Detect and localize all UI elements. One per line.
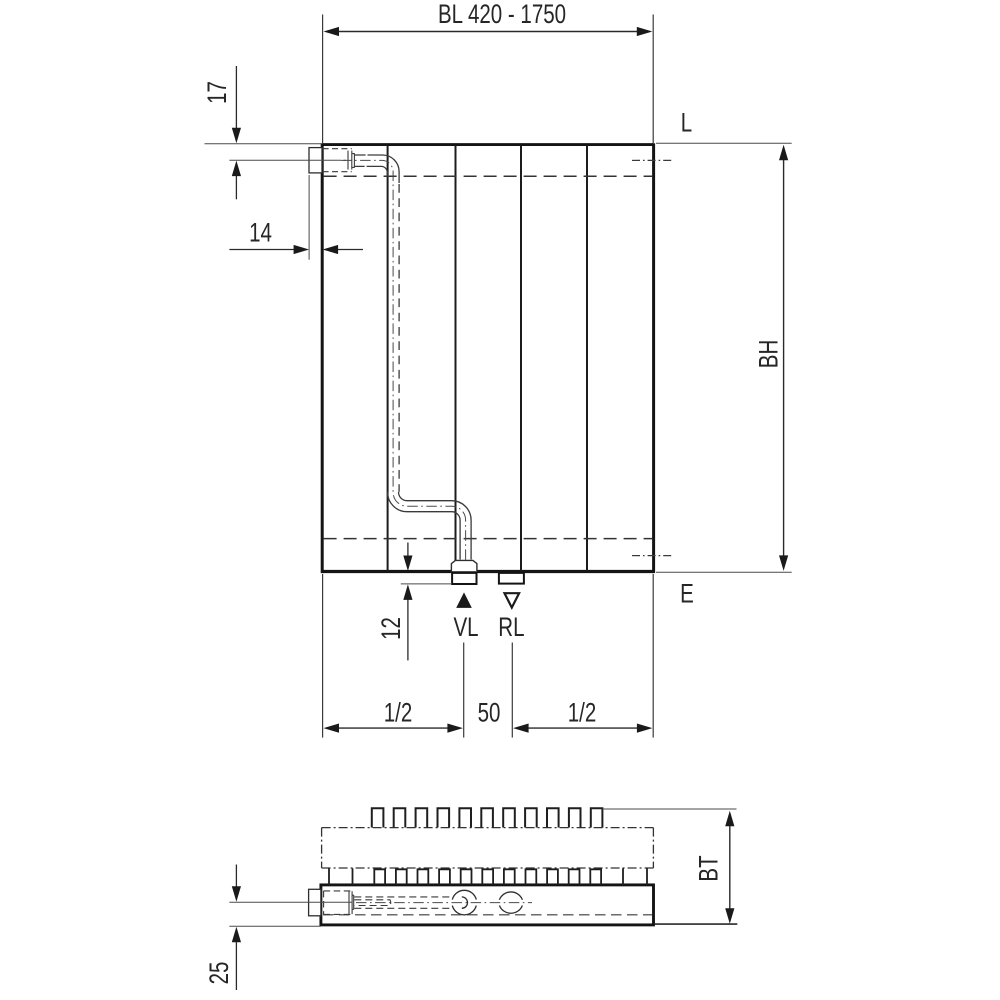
svg-text:L: L xyxy=(681,108,692,138)
svg-text:25: 25 xyxy=(204,962,234,985)
svg-text:17: 17 xyxy=(202,81,232,104)
svg-text:RL: RL xyxy=(498,612,524,642)
svg-text:1/2: 1/2 xyxy=(384,698,413,728)
svg-text:BT: BT xyxy=(694,855,724,882)
svg-text:50: 50 xyxy=(478,698,501,728)
svg-text:14: 14 xyxy=(249,218,272,248)
svg-text:VL: VL xyxy=(453,612,478,642)
svg-text:1/2: 1/2 xyxy=(568,698,597,728)
svg-text:BH: BH xyxy=(754,340,784,368)
svg-text:E: E xyxy=(680,579,694,609)
svg-text:BL 420 - 1750: BL 420 - 1750 xyxy=(438,0,566,30)
svg-text:12: 12 xyxy=(376,617,406,640)
